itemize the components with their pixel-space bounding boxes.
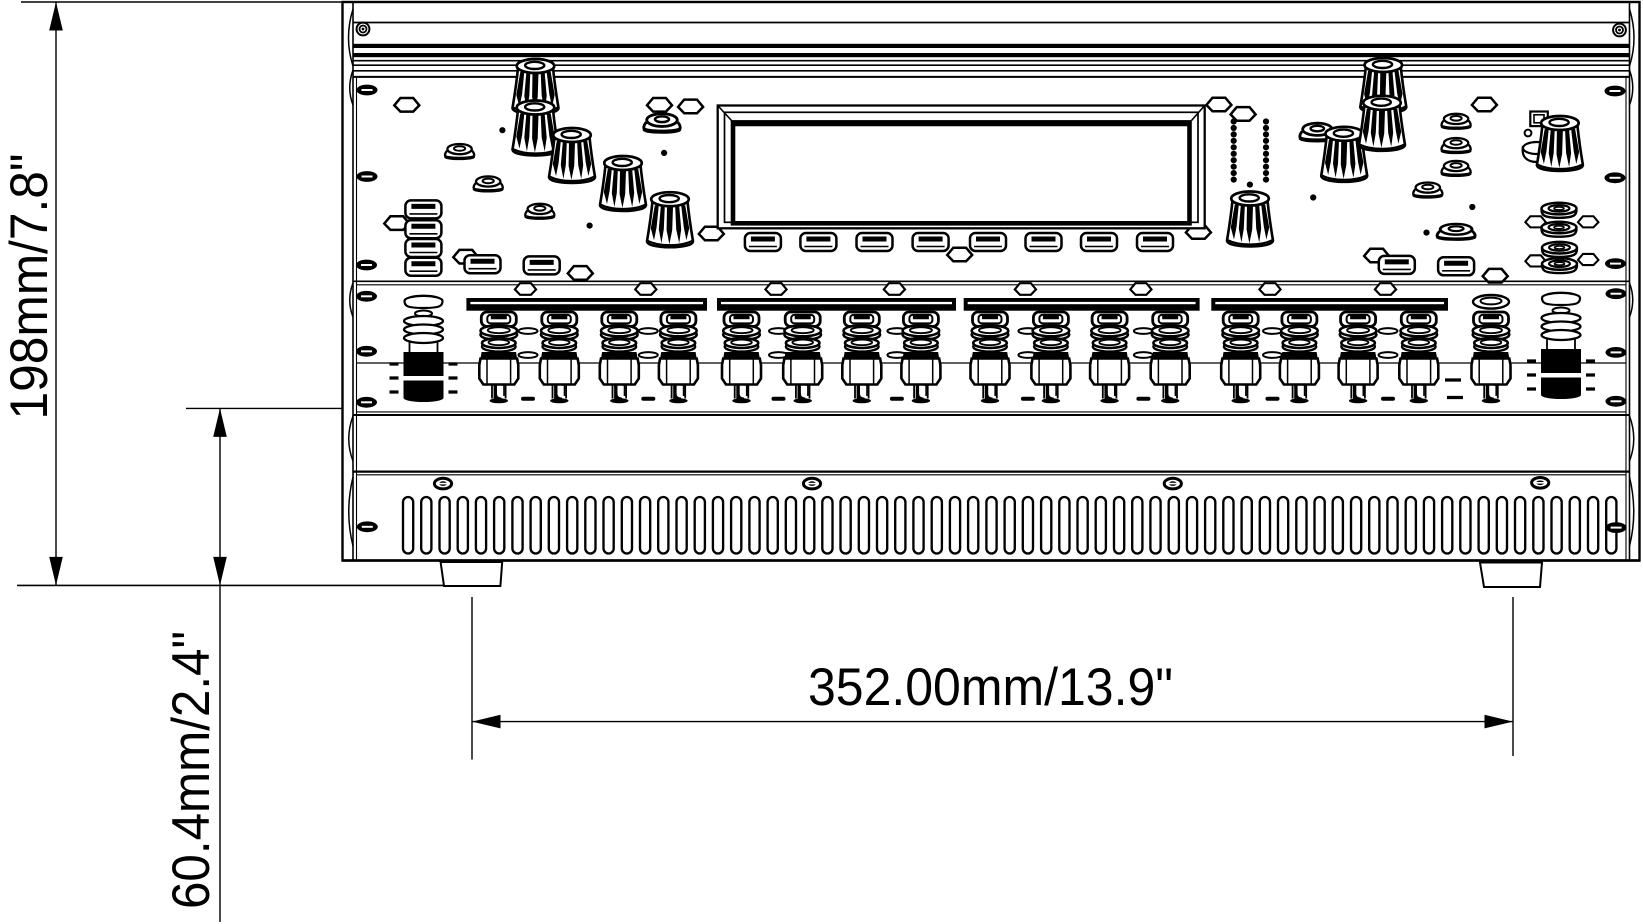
svg-text:198mm/7.8": 198mm/7.8" bbox=[0, 154, 59, 420]
svg-text:60.4mm/2.4": 60.4mm/2.4" bbox=[162, 631, 221, 909]
svg-text:352.00mm/13.9": 352.00mm/13.9" bbox=[808, 658, 1173, 717]
